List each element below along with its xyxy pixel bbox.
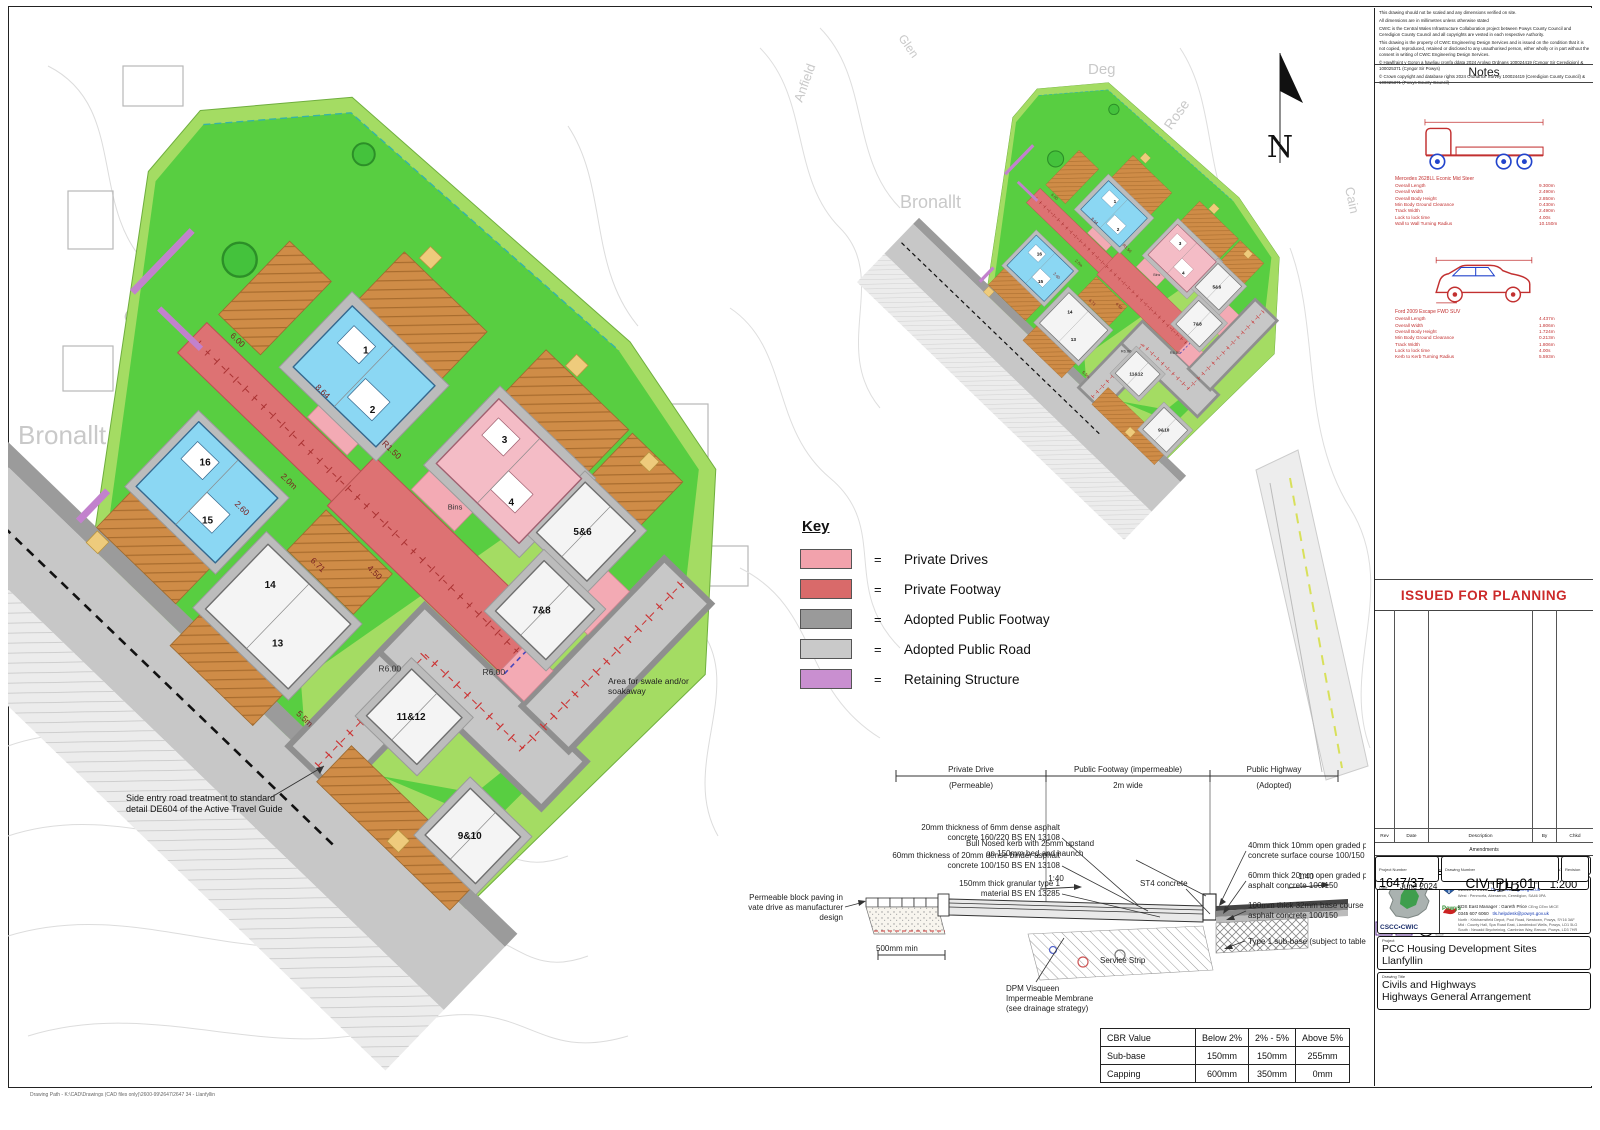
legend-item: = Retaining Structure xyxy=(800,669,1070,689)
amendments-columns xyxy=(1375,610,1593,828)
legend-item: = Private Footway xyxy=(800,579,1070,599)
svg-text:(Adopted): (Adopted) xyxy=(1256,781,1291,790)
svg-text:concrete 100/150 BS EN 13108: concrete 100/150 BS EN 13108 xyxy=(947,861,1060,870)
svg-text:asphalt concrete 100/150: asphalt concrete 100/150 xyxy=(1248,881,1338,890)
legend: Key = Private Drives = Private Footway =… xyxy=(800,518,1070,699)
kerb-label: on 150mm bed and haunch xyxy=(986,849,1083,858)
truck-specs: Mercedes 2628LL Econic Mid Steer Overall… xyxy=(1395,176,1573,227)
kerb-label: Bull Nosed kerb with 25mm upstand xyxy=(966,839,1094,848)
svg-text:(see drainage strategy): (see drainage strategy) xyxy=(1006,1004,1089,1013)
drawing-path: Drawing Path - K:\CAD\Drawings (CAD file… xyxy=(30,1092,215,1098)
legend-item: = Adopted Public Footway xyxy=(800,609,1070,629)
svg-text:Private Drive: Private Drive xyxy=(948,765,994,774)
svg-text:private drive as manufacturer: private drive as manufacturer xyxy=(748,903,843,912)
svg-text:Bronallt: Bronallt xyxy=(18,420,107,450)
drawing-title-box: Drawing Title Civils and Highways Highwa… xyxy=(1377,972,1591,1010)
amendments-label: Amendments xyxy=(1375,842,1593,857)
svg-text:Permeable block paving in: Permeable block paving in xyxy=(749,893,843,902)
svg-text:Glen: Glen xyxy=(896,32,922,61)
cbr-table: CBR Value Below 2% 2% - 5% Above 5% Sub-… xyxy=(1100,1028,1350,1083)
kerb-leader xyxy=(1136,860,1206,896)
table-row: CBR Value Below 2% 2% - 5% Above 5% xyxy=(1101,1029,1350,1047)
amendments-table: Rev Date Description By Chkd Amendments xyxy=(1375,610,1593,856)
highway-band xyxy=(1256,450,1368,780)
svg-text:soakaway: soakaway xyxy=(608,686,647,696)
legend-swatch-adopted-footway xyxy=(800,609,852,629)
legend-swatch-retaining xyxy=(800,669,852,689)
disclaimer-notes: This drawing should not be scaled and an… xyxy=(1375,8,1593,65)
svg-text:Deg: Deg xyxy=(1088,61,1116,78)
dpm-label: DPM Visqueen Impermeable Membrane (see d… xyxy=(1006,984,1094,1013)
svg-text:Bronallt: Bronallt xyxy=(900,192,961,212)
svg-text:Public Highway: Public Highway xyxy=(1247,765,1302,774)
drawing-sheet: 1 2 3 4 5&6 7&8 9&10 11&12 13 14 15 16 6… xyxy=(0,0,1600,1130)
table-row: Sub-base 150mm 150mm 255mm xyxy=(1101,1047,1350,1065)
svg-text:(Permeable): (Permeable) xyxy=(949,781,993,790)
suv-specs: Ford 2009 Escape FWD SUV Overall Length4… xyxy=(1395,309,1573,360)
svg-text:100mm thick 32mm base course: 100mm thick 32mm base course xyxy=(1248,901,1364,910)
legend-swatch-private-drives xyxy=(800,549,852,569)
svg-text:DPM Visqueen: DPM Visqueen xyxy=(1006,984,1059,993)
legend-swatch-private-footway xyxy=(800,579,852,599)
notes-header: Notes xyxy=(1375,65,1593,83)
st4-label: ST4 concrete xyxy=(1140,879,1188,888)
legend-item: = Private Drives xyxy=(800,549,1070,569)
drawing-number-box: Drawing Number CIV_PL_01 xyxy=(1441,856,1559,882)
svg-text:Cain: Cain xyxy=(1342,186,1362,215)
svg-text:asphalt concrete 100/150: asphalt concrete 100/150 xyxy=(1248,911,1338,920)
svg-text:design: design xyxy=(819,913,843,922)
project-box: Project PCC Housing Development Sites Ll… xyxy=(1377,936,1591,970)
pavement-section-detail: Private Drive(Permeable) Public Footway … xyxy=(748,748,1366,1020)
svg-text:Anfield: Anfield xyxy=(791,62,819,104)
title-panel: This drawing should not be scaled and an… xyxy=(1374,8,1592,1086)
legend-item: = Adopted Public Road xyxy=(800,639,1070,659)
main-site-plan: 1 2 3 4 5&6 7&8 9&10 11&12 13 14 15 16 6… xyxy=(8,6,770,1084)
title-block: Engineering Design Services CSCC•CWIC ED… xyxy=(1375,856,1593,1086)
table-row: Capping 600mm 350mm 0mm xyxy=(1101,1065,1350,1083)
suv-vehicle-diagram xyxy=(1419,255,1549,307)
svg-text:Impermeable Membrane: Impermeable Membrane xyxy=(1006,994,1094,1003)
legend-swatch-adopted-road xyxy=(800,639,852,659)
legend-title: Key xyxy=(802,518,1070,535)
svg-text:20mm thickness of 6mm dense as: 20mm thickness of 6mm dense asphalt xyxy=(921,823,1061,832)
north-label: N xyxy=(1267,130,1293,165)
svg-text:150mm thick granular type 1: 150mm thick granular type 1 xyxy=(959,879,1060,888)
amendments-header: Rev Date Description By Chkd xyxy=(1375,828,1593,843)
svg-text:40mm thick 10mm open graded pe: 40mm thick 10mm open graded permeable as… xyxy=(1248,841,1366,850)
status-stamp: ISSUED FOR PLANNING xyxy=(1375,580,1593,611)
drawing-title: Civils and Highways Highways General Arr… xyxy=(1382,979,1586,1003)
section-span-labels: Private Drive(Permeable) Public Footway … xyxy=(948,765,1301,790)
project-number-box: Project Number 1647/37 xyxy=(1375,856,1439,882)
svg-text:60mm thick 20mm open graded po: 60mm thick 20mm open graded porous binde… xyxy=(1248,871,1366,880)
notes-body: Mercedes 2628LL Econic Mid Steer Overall… xyxy=(1375,82,1593,580)
service-strip-label: Service Strip xyxy=(1100,956,1146,965)
svg-text:Public Footway (impermeable): Public Footway (impermeable) xyxy=(1074,765,1182,774)
svg-text:Area for swale and/or: Area for swale and/or xyxy=(608,676,689,686)
svg-text:Side entry road treatment to s: Side entry road treatment to standard xyxy=(126,793,275,803)
svg-text:2m wide: 2m wide xyxy=(1113,781,1143,790)
svg-text:detail DE604 of the Active Tra: detail DE604 of the Active Travel Guide xyxy=(126,804,283,814)
truck-vehicle-diagram xyxy=(1409,116,1559,174)
revision-box: Revision xyxy=(1561,856,1589,882)
svg-text:concrete surface course 100/15: concrete surface course 100/150 xyxy=(1248,851,1365,860)
dim-500-label: 500mm min xyxy=(876,944,918,953)
svg-text:Type 1 sub-base (subject to ta: Type 1 sub-base (subject to table below) xyxy=(1248,937,1366,946)
project-name: PCC Housing Development Sites Llanfyllin xyxy=(1382,943,1586,967)
svg-text:material BS EN 13285: material BS EN 13285 xyxy=(981,889,1061,898)
north-arrow: N xyxy=(1248,45,1318,180)
